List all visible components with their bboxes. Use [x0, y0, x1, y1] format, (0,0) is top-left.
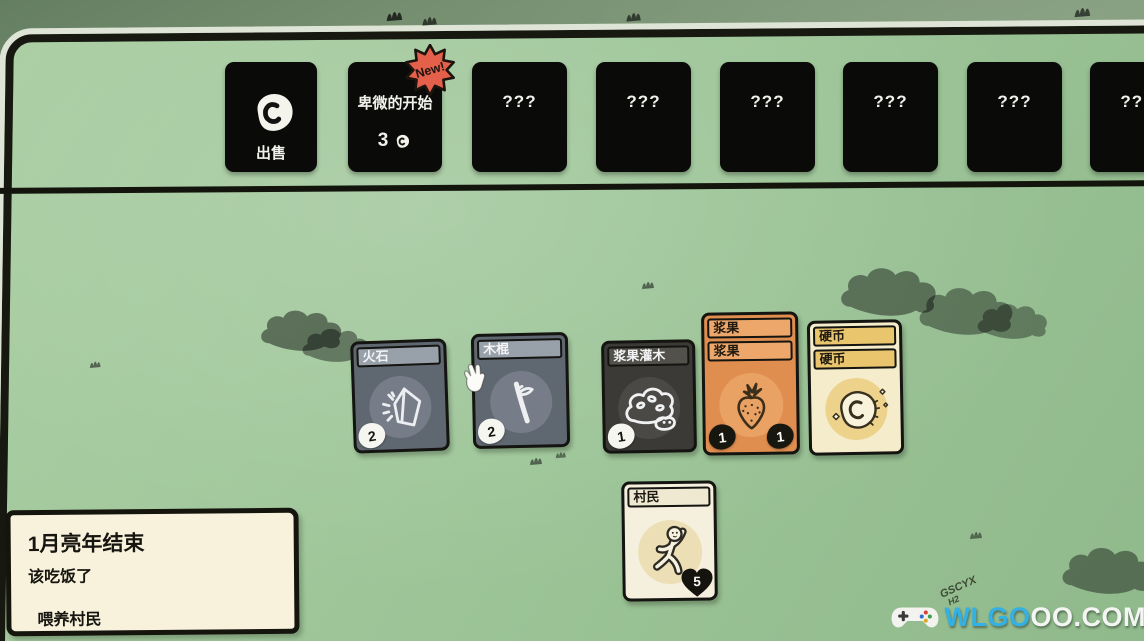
coin-blob-icon — [241, 82, 301, 144]
grass-doodle — [1072, 0, 1098, 20]
sell-card-label: 出售 — [225, 142, 317, 163]
card-title: 浆果 — [707, 340, 792, 361]
card-villager[interactable]: 村民 — [621, 480, 718, 601]
card-title: 浆果灌木 — [607, 345, 689, 366]
gamepad-icon — [888, 599, 942, 635]
card-coin-stack[interactable]: 硬币 硬币 — [807, 319, 904, 456]
site-watermark: WLGOOO.COM — [888, 599, 1144, 635]
watermark-text: WLGOOO.COM — [945, 602, 1144, 633]
card-title: 硬币 — [813, 325, 896, 346]
sell-card[interactable]: 出售 — [225, 62, 317, 172]
notification-title: 1月亮年结束 — [28, 526, 277, 558]
card-title: 火石 — [356, 345, 441, 368]
coin-sketch-icon — [822, 378, 889, 439]
locked-pack-label: ??? — [596, 92, 691, 112]
quest-feed-villagers: 喂养村民 — [28, 604, 277, 630]
card-title: 浆果 — [707, 317, 792, 338]
locked-pack-2[interactable]: ??? — [596, 62, 691, 172]
locked-pack-1[interactable]: ??? — [472, 62, 567, 172]
locked-pack-label: ??? — [472, 92, 567, 112]
locked-pack-5[interactable]: ??? — [967, 62, 1062, 172]
health-value: 5 — [693, 574, 701, 589]
pack-cost: 3 — [348, 130, 442, 152]
grass-doodle — [624, 6, 648, 24]
card-title: 硬币 — [813, 348, 896, 369]
locked-pack-label: ??? — [1090, 92, 1144, 112]
card-flint[interactable]: 火石 2 — [350, 338, 450, 453]
card-title: 村民 — [627, 486, 710, 507]
notification-subtitle: 该吃饭了 — [28, 561, 277, 587]
card-berry-bush[interactable]: 浆果灌木 1 — [601, 339, 697, 454]
new-badge: New! — [404, 44, 456, 96]
health-badge: 5 — [680, 567, 713, 598]
card-title: 木棍 — [477, 338, 562, 360]
notification-box: 1月亮年结束 该吃饭了 喂养村民 — [5, 508, 299, 637]
locked-pack-6[interactable]: ??? — [1090, 62, 1144, 172]
locked-pack-4[interactable]: ??? — [843, 62, 938, 172]
locked-pack-3[interactable]: ??? — [720, 62, 815, 172]
locked-pack-label: ??? — [720, 92, 815, 112]
booster-pack-humble-beginning[interactable]: 卑微的开始 3 New! — [348, 62, 442, 172]
grass-doodle — [420, 10, 444, 28]
watermark-rest: OO.COM — [1031, 602, 1144, 632]
locked-pack-label: ??? — [967, 92, 1062, 112]
locked-pack-label: ??? — [843, 92, 938, 112]
card-berry-stack[interactable]: 浆果 浆果 1 1 — [701, 311, 800, 455]
game-screen: 出售 卑微的开始 3 New! ??? ??? ??? ??? ??? ??? — [0, 0, 1144, 641]
pack-cost-value: 3 — [378, 130, 389, 152]
grass-doodle — [384, 4, 410, 24]
watermark-highlight: WLGO — [945, 602, 1031, 632]
coin-icon — [391, 131, 412, 152]
